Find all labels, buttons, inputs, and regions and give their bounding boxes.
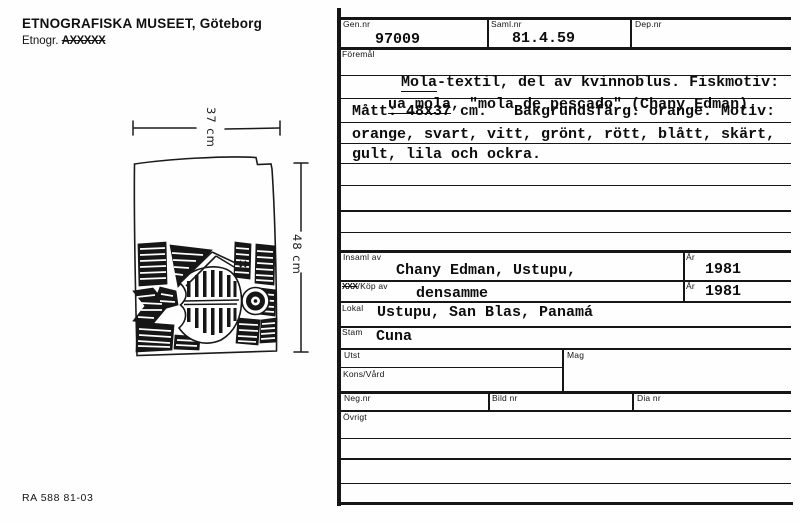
field-label-ar-1: År xyxy=(686,253,695,262)
kop-av-value: densamme xyxy=(416,286,488,302)
rule-line xyxy=(341,163,791,164)
etnogr-struck-text: AXXXXX xyxy=(62,35,106,47)
rule-line xyxy=(341,210,791,212)
foremal-line-5: gult, lila och ockra. xyxy=(352,147,541,163)
card-left-border xyxy=(337,8,341,506)
mola-sketch: 37 cm 48 cm xyxy=(108,95,326,370)
rule-line xyxy=(630,18,632,48)
rule-line xyxy=(341,280,791,282)
field-label-ar-2: År xyxy=(686,282,695,291)
field-label-mag: Mag xyxy=(567,351,584,360)
saml-nr-value: 81.4.59 xyxy=(512,31,575,47)
etnogr-prefix: Etnogr. xyxy=(22,35,58,47)
field-label-gen-nr: Gen.nr xyxy=(343,20,370,29)
field-label-ovrigt: Övrigt xyxy=(343,413,367,422)
field-label-dep-nr: Dep.nr xyxy=(635,20,662,29)
rule-line xyxy=(341,232,791,233)
rule-line xyxy=(341,348,791,350)
etnogr-line: Etnogr. AXXXXX xyxy=(22,35,105,47)
lokal-value: Ustupu, San Blas, Panamá xyxy=(377,305,593,321)
fish-head xyxy=(242,288,269,315)
rule-line xyxy=(632,392,634,411)
rule-line xyxy=(562,348,564,392)
stam-value: Cuna xyxy=(376,329,412,345)
kop-av-label-text: /Köp av xyxy=(358,281,388,291)
insaml-av-value: Chany Edman, Ustupu, xyxy=(396,263,576,279)
field-label-stam: Stam xyxy=(342,328,363,337)
rule-line xyxy=(341,391,791,394)
rule-line xyxy=(341,483,791,484)
field-label-utst: Utst xyxy=(344,351,360,360)
sketch-width-label: 37 cm xyxy=(204,107,218,148)
rule-line xyxy=(341,367,562,368)
field-label-kons-vard: Kons/Vård xyxy=(343,370,385,379)
rule-line xyxy=(341,250,791,253)
kop-ar-value: 1981 xyxy=(705,284,741,300)
field-label-dia-nr: Dia nr xyxy=(637,394,661,403)
rule-line xyxy=(341,185,791,186)
rule-line xyxy=(488,392,490,411)
field-label-bild-nr: Bild nr xyxy=(492,394,518,403)
rule-line xyxy=(683,251,685,302)
rule-line xyxy=(341,17,791,20)
field-label-foremal: Föremål xyxy=(342,50,375,59)
catalog-card-page: ETNOGRAFISKA MUSEET, Göteborg Etnogr. AX… xyxy=(0,0,800,523)
rule-line xyxy=(341,301,791,303)
foremal-line-4: orange, svart, vitt, grönt, rött, blått,… xyxy=(352,127,775,143)
field-label-saml-nr: Saml.nr xyxy=(491,20,522,29)
field-label-neg-nr: Neg.nr xyxy=(344,394,371,403)
foremal-line-3: Mått: 48x37 cm. Bakgrundsfärg: orange. M… xyxy=(352,104,775,120)
kop-av-struck-text: XXX xyxy=(342,281,358,291)
rule-line xyxy=(341,410,791,412)
field-label-lokal: Lokal xyxy=(342,304,363,313)
rule-line xyxy=(341,143,791,144)
gen-nr-value: 97009 xyxy=(375,32,420,48)
field-label-kop-av: XXX/Köp av xyxy=(342,282,388,291)
rule-line xyxy=(341,502,793,505)
rule-line xyxy=(341,458,791,460)
rule-line xyxy=(341,438,791,439)
insaml-ar-value: 1981 xyxy=(705,262,741,278)
field-label-insaml-av: Insaml av xyxy=(343,253,381,262)
sketch-height-label: 48 cm xyxy=(290,234,304,275)
form-code: RA 588 81-03 xyxy=(22,492,93,504)
rule-line xyxy=(487,18,489,48)
museum-name: ETNOGRAFISKA MUSEET, Göteborg xyxy=(22,16,262,31)
